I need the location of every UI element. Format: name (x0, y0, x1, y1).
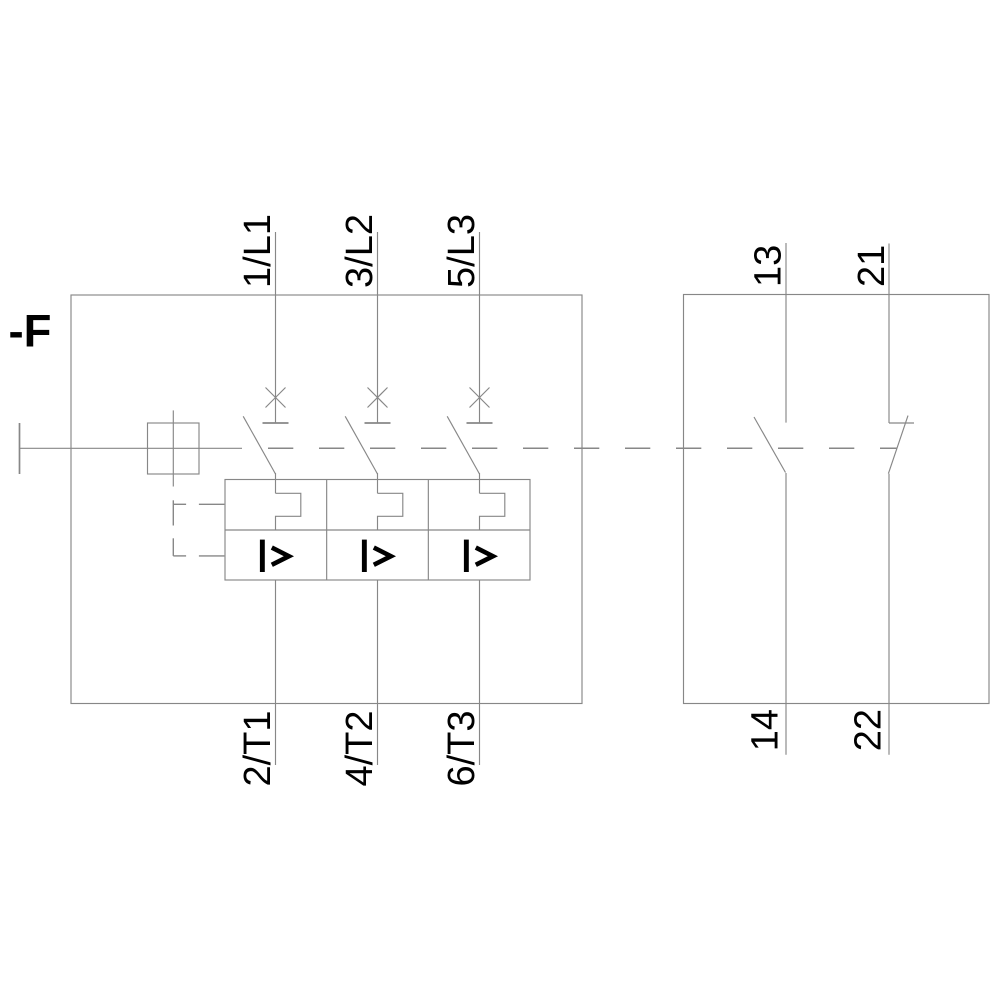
svg-text:4/T2: 4/T2 (339, 711, 381, 787)
svg-text:3/L2: 3/L2 (339, 214, 381, 288)
svg-text:6/T3: 6/T3 (441, 711, 483, 787)
svg-text:21: 21 (851, 245, 893, 287)
svg-text:22: 22 (848, 709, 890, 751)
svg-text:2/T1: 2/T1 (237, 711, 279, 787)
svg-text:13: 13 (748, 245, 790, 287)
svg-text:14: 14 (745, 709, 787, 751)
svg-text:-F: -F (9, 306, 52, 357)
svg-text:5/L3: 5/L3 (441, 214, 483, 288)
svg-text:1/L1: 1/L1 (237, 214, 279, 288)
